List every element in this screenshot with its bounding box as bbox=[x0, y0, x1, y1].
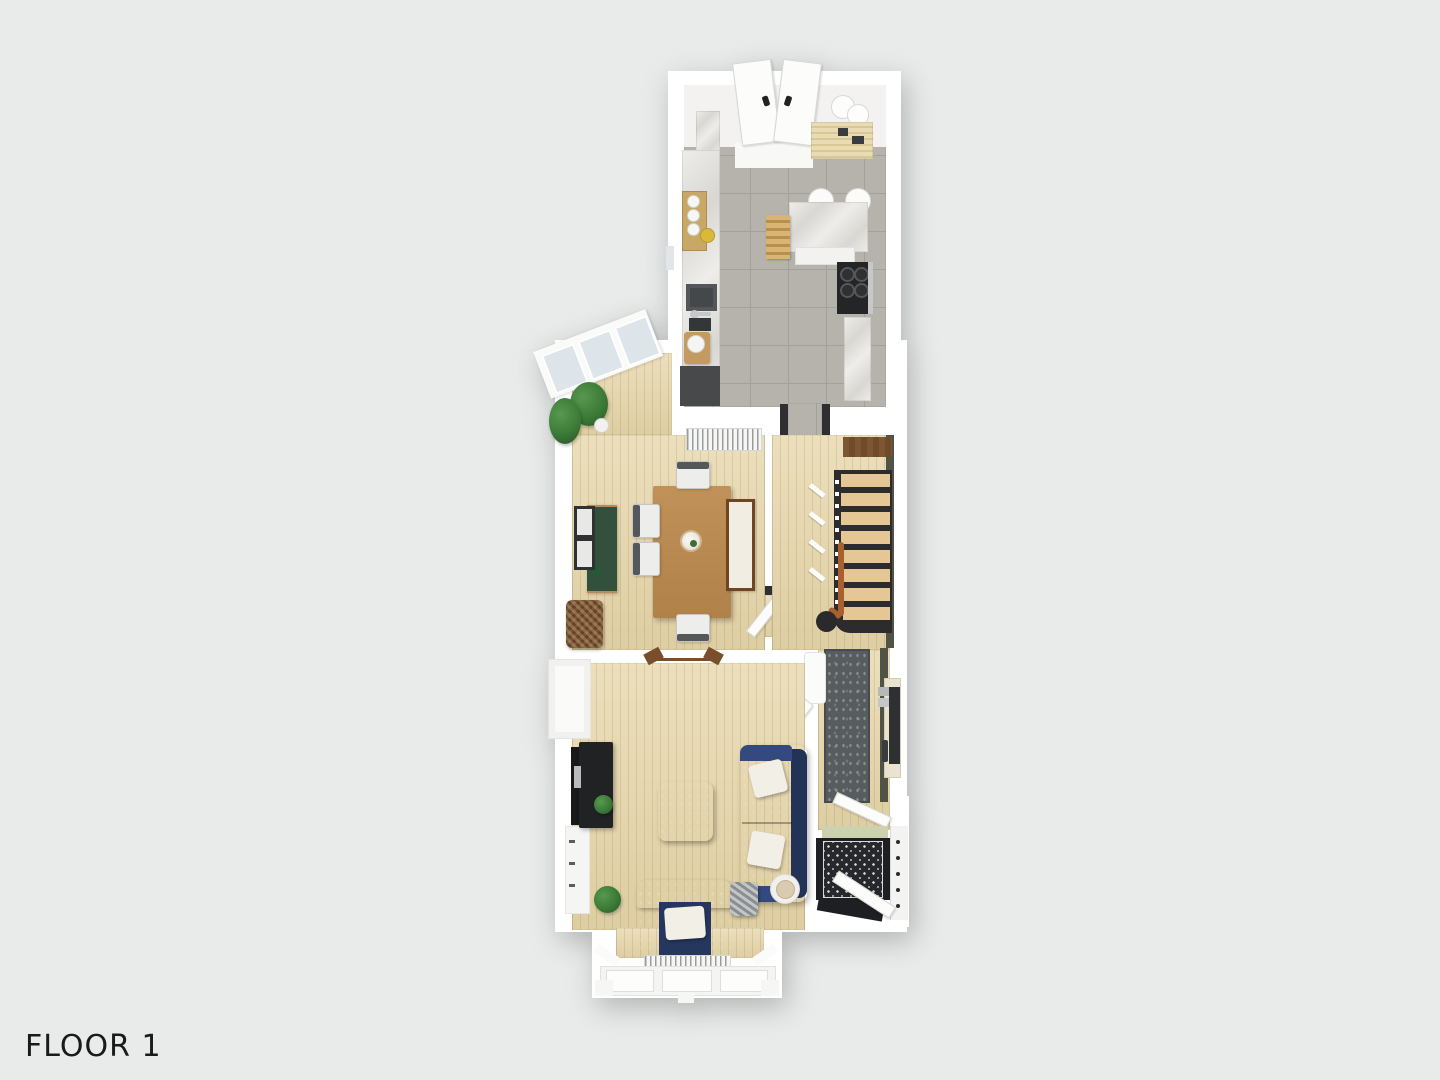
bay-corner-tab bbox=[595, 980, 613, 996]
stair-landing bbox=[843, 437, 892, 457]
bay-center-tab bbox=[678, 992, 694, 1003]
burner-icon bbox=[840, 267, 855, 282]
kitchen-window bbox=[666, 246, 674, 270]
sofa-arm bbox=[740, 745, 792, 761]
shelf-mark-icon bbox=[569, 840, 575, 843]
sofa-pillow bbox=[748, 758, 789, 798]
bay-window-pane bbox=[662, 970, 712, 992]
dining-radiator bbox=[686, 428, 762, 451]
cushion-seam bbox=[742, 822, 792, 824]
bench-item bbox=[838, 128, 848, 136]
bay-window-pane bbox=[606, 970, 654, 992]
kitchen-sink bbox=[686, 284, 717, 311]
table-lamp-icon bbox=[776, 880, 795, 899]
stair-tread bbox=[841, 588, 890, 601]
dining-chair bbox=[632, 504, 660, 538]
runner-rug bbox=[824, 649, 870, 803]
stair-tread bbox=[841, 550, 890, 563]
floor-plan bbox=[0, 0, 1440, 1080]
wicker-basket bbox=[566, 600, 603, 648]
window-alcove bbox=[548, 659, 591, 739]
burner-icon bbox=[854, 283, 869, 298]
plant-pot bbox=[594, 418, 609, 433]
stove-rail bbox=[868, 262, 873, 314]
corner-bench bbox=[804, 652, 826, 704]
ottoman bbox=[658, 782, 713, 841]
floor-plant bbox=[594, 886, 621, 913]
hinge-dot-icon bbox=[896, 872, 900, 876]
wall-mirror bbox=[889, 687, 900, 764]
white-jar-icon bbox=[687, 335, 705, 353]
threshold-mat bbox=[822, 826, 888, 838]
fruit-bowl-icon bbox=[700, 228, 715, 243]
door-jamb bbox=[765, 586, 772, 595]
stair-tread bbox=[841, 474, 890, 487]
picture-frame-icon bbox=[574, 538, 595, 570]
keys-icon bbox=[882, 740, 888, 762]
dining-chair bbox=[676, 614, 710, 642]
dishwasher-counter bbox=[680, 366, 720, 406]
kitchen-doorway-floor bbox=[788, 403, 822, 437]
newel-post bbox=[816, 611, 837, 632]
flower-greens-icon bbox=[690, 540, 697, 547]
sofa-pillow bbox=[746, 830, 785, 869]
stair-tread bbox=[841, 531, 890, 544]
wood-bar-stool bbox=[766, 215, 790, 259]
dining-chair bbox=[676, 461, 710, 489]
bench-item bbox=[852, 136, 864, 144]
shelf-mark-icon bbox=[569, 884, 575, 887]
door-landing bbox=[735, 142, 813, 168]
stair-tread bbox=[841, 569, 890, 582]
console-item-icon bbox=[574, 766, 581, 788]
canister-icon bbox=[687, 209, 700, 222]
kitchen-island bbox=[789, 202, 868, 252]
sink-basin bbox=[689, 318, 711, 331]
media-console bbox=[579, 742, 613, 828]
door-jamb bbox=[780, 404, 788, 437]
marble-cabinet bbox=[696, 111, 720, 153]
door-jamb bbox=[822, 404, 830, 437]
faucet-icon bbox=[697, 312, 711, 316]
stair-tread bbox=[841, 512, 890, 525]
dining-table bbox=[653, 486, 731, 618]
picture-frame-icon bbox=[574, 506, 595, 538]
handrail bbox=[838, 542, 844, 616]
burner-icon bbox=[840, 283, 855, 298]
armchair bbox=[636, 880, 733, 963]
canister-icon bbox=[687, 195, 700, 208]
shelf-mark-icon bbox=[569, 862, 575, 865]
hinge-dot-icon bbox=[896, 840, 900, 844]
hinge-dot-icon bbox=[896, 904, 900, 908]
stair-tread bbox=[843, 607, 890, 620]
storage-basket bbox=[730, 882, 758, 916]
hinge-dot-icon bbox=[896, 888, 900, 892]
dining-bench bbox=[726, 499, 755, 591]
armchair-pillow bbox=[664, 906, 706, 941]
plant-on-console bbox=[594, 795, 613, 814]
stair-tread bbox=[841, 493, 890, 506]
bay-corner-tab bbox=[761, 980, 779, 996]
dining-chair bbox=[632, 542, 660, 576]
right-counter bbox=[844, 317, 871, 401]
burner-icon bbox=[854, 267, 869, 282]
scene: FLOOR 1 bbox=[0, 0, 1440, 1080]
potted-plant bbox=[549, 398, 581, 444]
canister-icon bbox=[687, 223, 700, 236]
floor-label: FLOOR 1 bbox=[25, 1029, 162, 1064]
armchair-arm bbox=[636, 890, 661, 960]
hinge-dot-icon bbox=[896, 856, 900, 860]
